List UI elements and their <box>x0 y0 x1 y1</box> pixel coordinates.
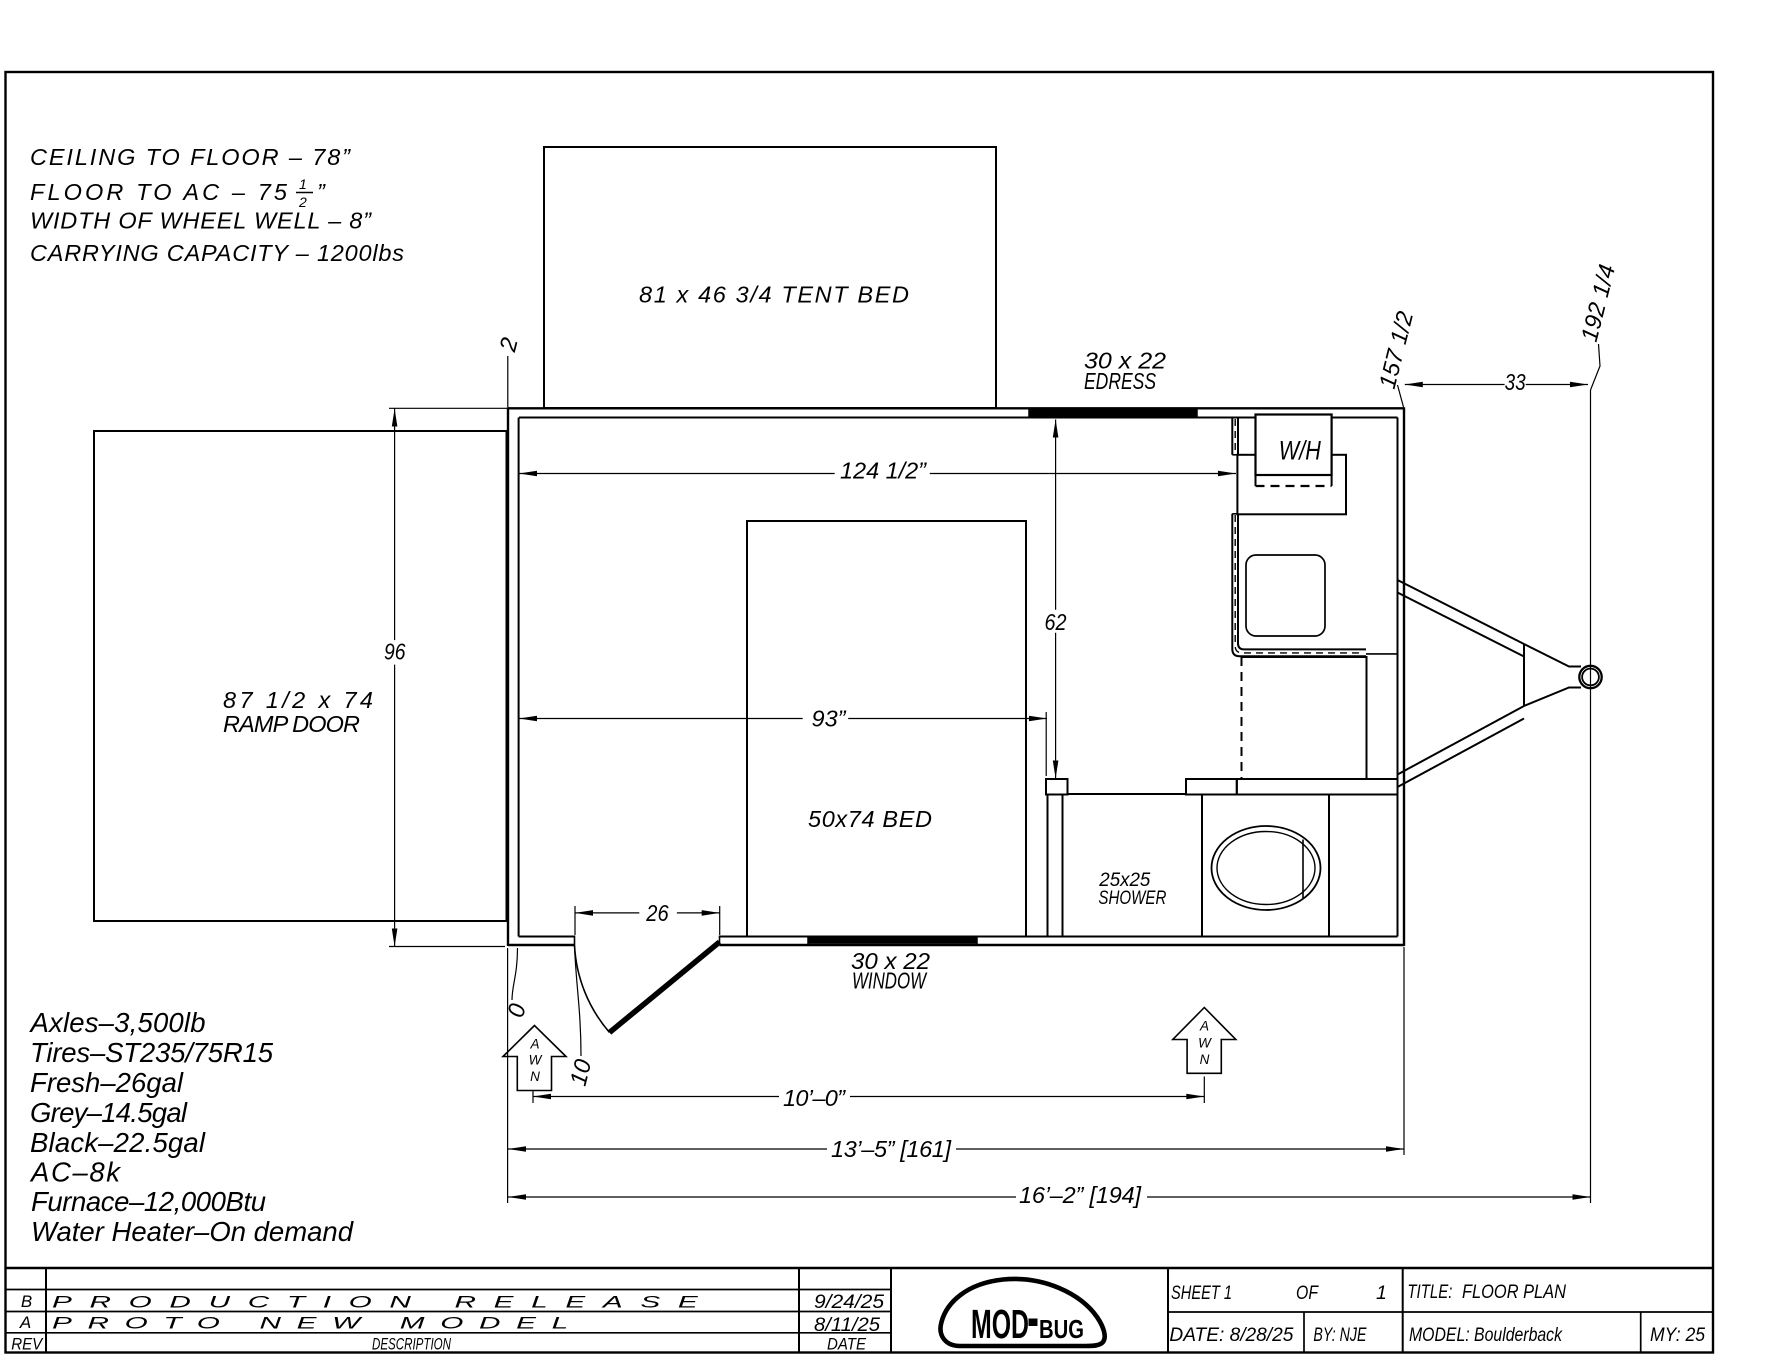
svg-text:MODEL: Boulderback: MODEL: Boulderback <box>1409 1324 1563 1346</box>
svg-text:1: 1 <box>299 176 307 192</box>
svg-text:81 x 46 3/4 TENT BED: 81 x 46 3/4 TENT BED <box>639 282 909 308</box>
svg-text:87 1/2 x 74: 87 1/2 x 74 <box>223 687 373 713</box>
svg-text:DATE: 8/28/25: DATE: 8/28/25 <box>1169 1324 1293 1346</box>
svg-text:62: 62 <box>1045 609 1067 635</box>
svg-text:50x74 BED: 50x74 BED <box>808 806 932 832</box>
svg-text:Axles–3,500lb: Axles–3,500lb <box>29 1007 206 1038</box>
svg-text:TITLE:: TITLE: <box>1407 1281 1452 1303</box>
svg-text:MY: 25: MY: 25 <box>1650 1324 1705 1346</box>
svg-text:FLOOR PLAN: FLOOR PLAN <box>1462 1281 1567 1303</box>
svg-text:DATE: DATE <box>827 1336 867 1354</box>
svg-text:13’–5” [161]: 13’–5” [161] <box>831 1136 951 1162</box>
svg-text:16’–2” [194]: 16’–2” [194] <box>1019 1182 1141 1208</box>
svg-text:1: 1 <box>1376 1282 1387 1304</box>
svg-text:N: N <box>1200 1052 1210 1067</box>
svg-text:REV: REV <box>11 1336 44 1354</box>
svg-text:W: W <box>1198 1035 1212 1050</box>
svg-text:8/11/25: 8/11/25 <box>814 1314 880 1336</box>
svg-text:EDRESS: EDRESS <box>1084 368 1156 394</box>
svg-text:A: A <box>1199 1019 1209 1034</box>
svg-text:Tires–ST235/75R15: Tires–ST235/75R15 <box>30 1037 274 1068</box>
svg-text:WIDTH OF WHEEL WELL – 8”: WIDTH OF WHEEL WELL – 8” <box>30 208 372 234</box>
svg-text:B: B <box>21 1292 32 1311</box>
svg-text:Water Heater–On demand: Water Heater–On demand <box>31 1216 355 1247</box>
svg-text:FLOOR TO AC – 75: FLOOR TO AC – 75 <box>30 179 288 205</box>
svg-text:10’–0”: 10’–0” <box>783 1085 846 1111</box>
svg-text:AC–8k: AC–8k <box>29 1157 121 1188</box>
svg-text:DESCRIPTION: DESCRIPTION <box>372 1336 451 1354</box>
svg-text:PROTO NEW MODEL: PROTO NEW MODEL <box>52 1314 568 1333</box>
svg-text:33: 33 <box>1505 369 1526 395</box>
svg-text:W: W <box>529 1053 543 1068</box>
svg-text:124 1/2”: 124 1/2” <box>840 458 927 484</box>
svg-text:RAMP DOOR: RAMP DOOR <box>223 711 360 737</box>
svg-text:93”: 93” <box>812 706 847 732</box>
svg-text:Grey–14.5gal: Grey–14.5gal <box>30 1097 188 1128</box>
svg-text:CARRYING CAPACITY – 1200lbs: CARRYING CAPACITY – 1200lbs <box>30 240 404 266</box>
svg-text:9/24/25: 9/24/25 <box>814 1291 884 1313</box>
svg-text:N: N <box>530 1069 540 1084</box>
svg-text:CEILING TO FLOOR – 78”: CEILING TO FLOOR – 78” <box>30 144 351 170</box>
svg-text:A: A <box>529 1037 539 1052</box>
svg-text:W/H: W/H <box>1279 436 1321 466</box>
svg-text:SHEET 1: SHEET 1 <box>1171 1282 1232 1304</box>
svg-text:96: 96 <box>384 639 406 665</box>
svg-text:MOD: MOD <box>971 1301 1029 1347</box>
svg-text:WINDOW: WINDOW <box>852 968 928 994</box>
svg-text:A: A <box>19 1313 31 1332</box>
svg-text:Fresh–26gal: Fresh–26gal <box>30 1067 184 1098</box>
svg-text:SHOWER: SHOWER <box>1098 887 1166 909</box>
svg-text:2: 2 <box>298 194 307 210</box>
svg-text:BUG: BUG <box>1039 1314 1084 1344</box>
svg-text:BY: NJE: BY: NJE <box>1313 1324 1367 1346</box>
svg-text:OF: OF <box>1296 1282 1319 1304</box>
svg-text:26: 26 <box>645 900 669 926</box>
svg-text:Furnace–12,000Btu: Furnace–12,000Btu <box>31 1186 266 1217</box>
svg-text:”: ” <box>317 179 326 205</box>
svg-text:Black–22.5gal: Black–22.5gal <box>30 1127 206 1158</box>
